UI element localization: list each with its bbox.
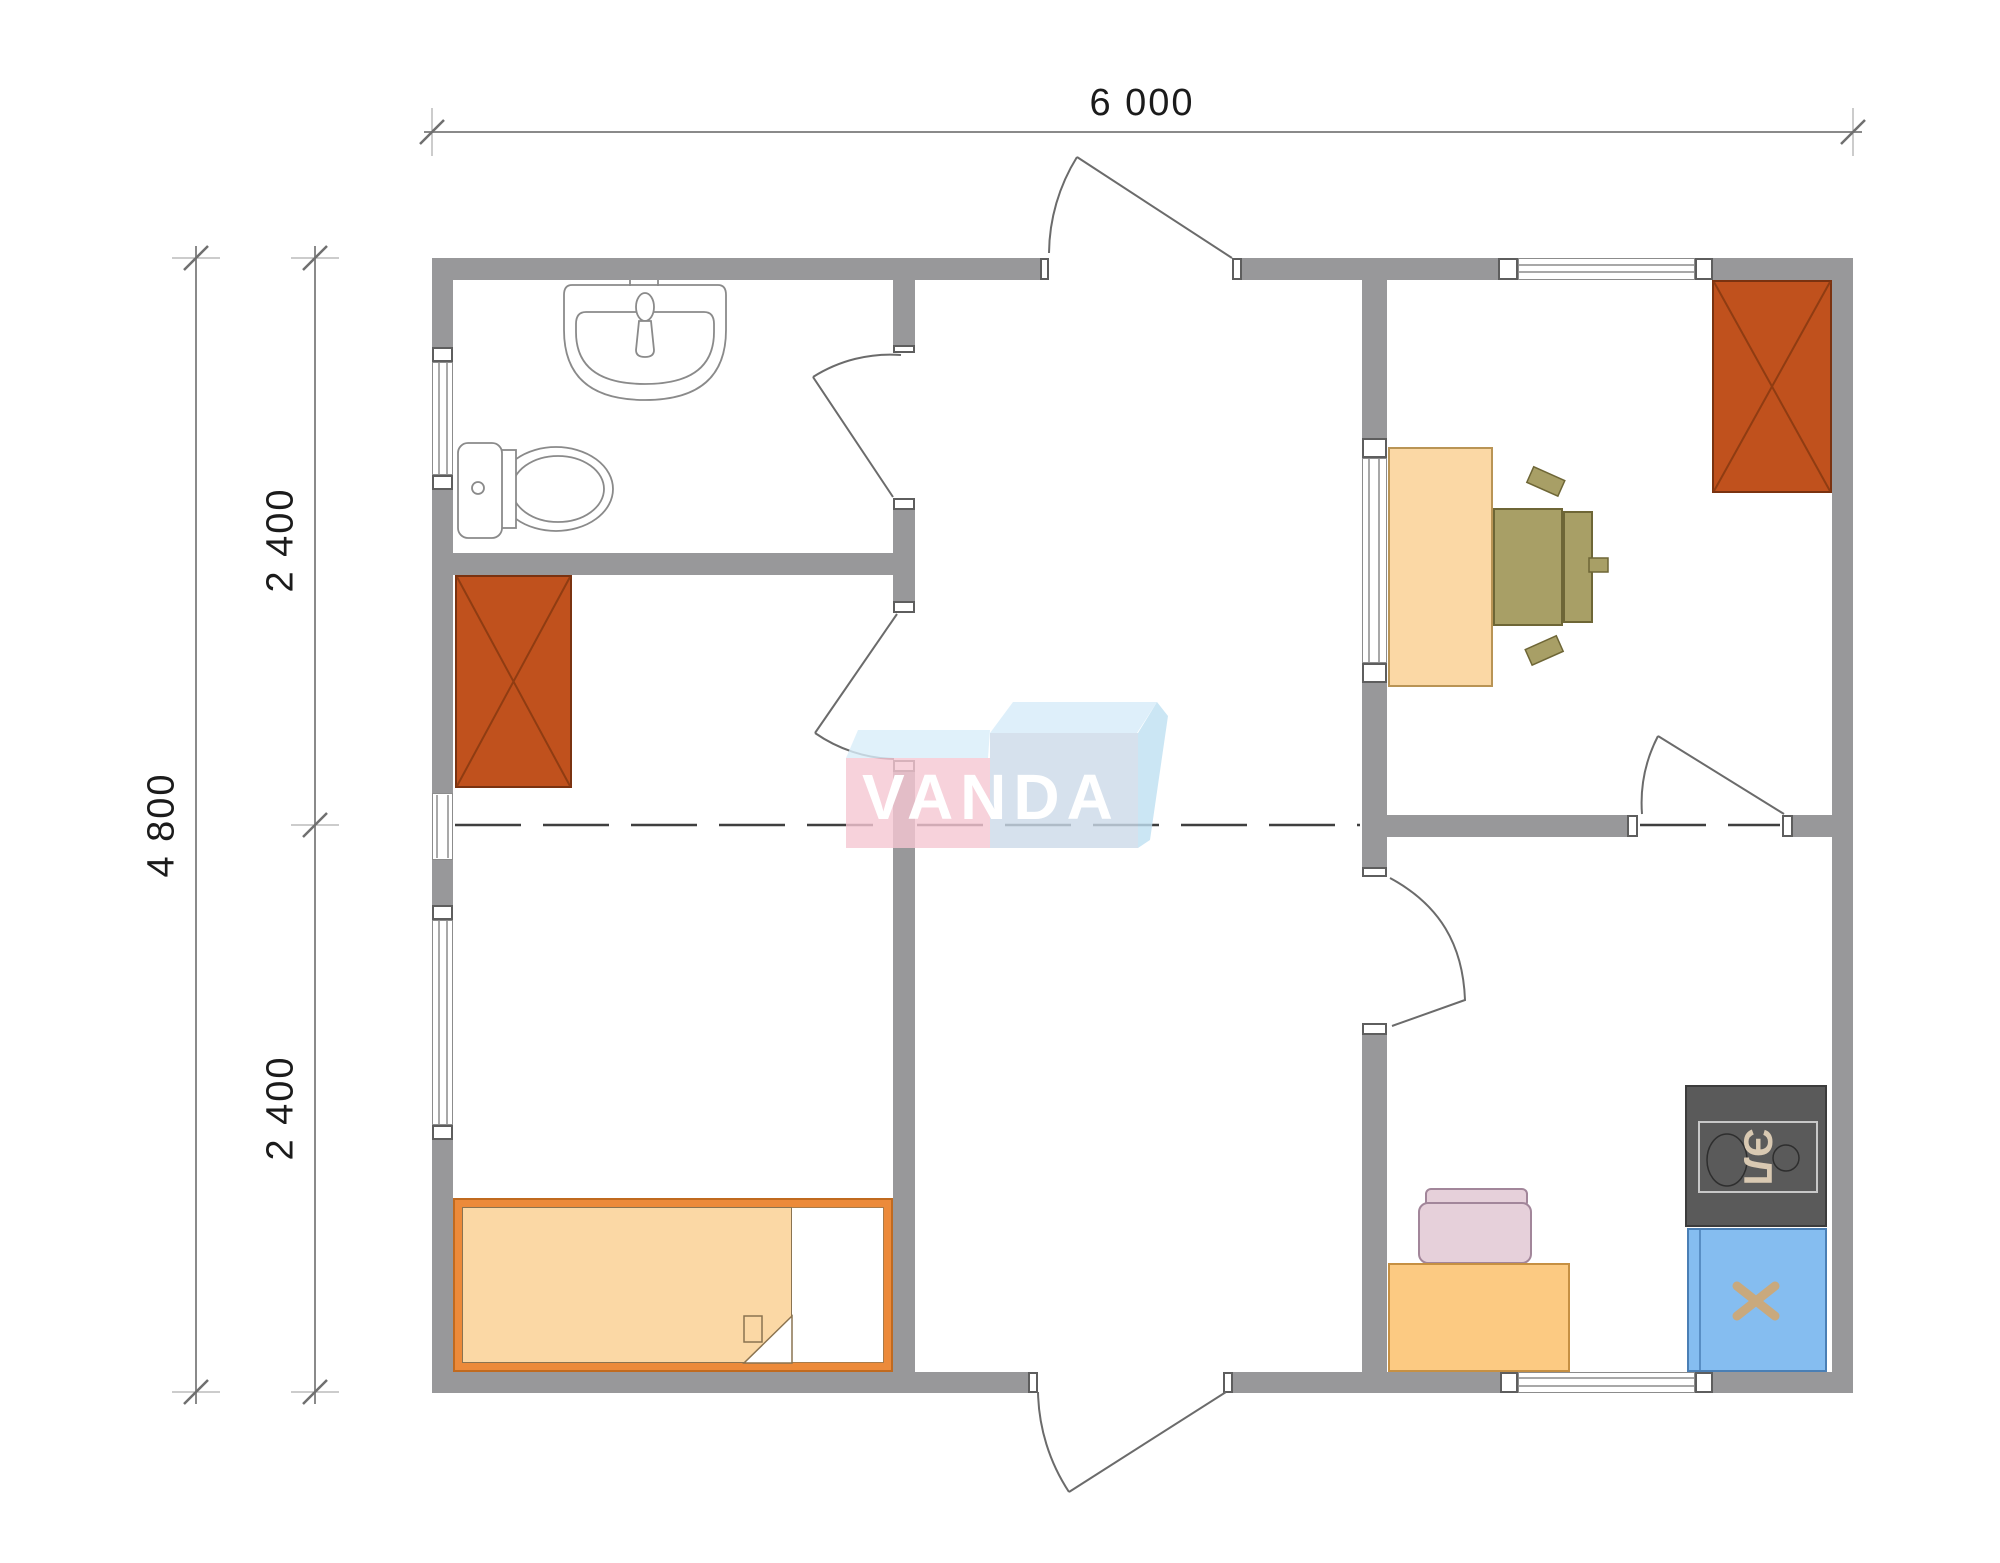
dimension-width-label: 6 000	[1089, 82, 1194, 125]
logo-wordmark: VANDA	[862, 760, 1120, 834]
dimension-height-lower-label: 2 400	[260, 1055, 303, 1160]
dimension-height-total-label: 4 800	[141, 772, 184, 877]
logo-pink-top-face	[846, 730, 990, 758]
floor-plan: VANDA 6 000 4 800 2 400 2 400 ЭЛ	[0, 0, 2000, 1563]
logo-blue-top-face	[990, 702, 1157, 733]
stove-label: ЭЛ	[1735, 1129, 1780, 1188]
dimension-height-upper-label: 2 400	[260, 487, 303, 592]
